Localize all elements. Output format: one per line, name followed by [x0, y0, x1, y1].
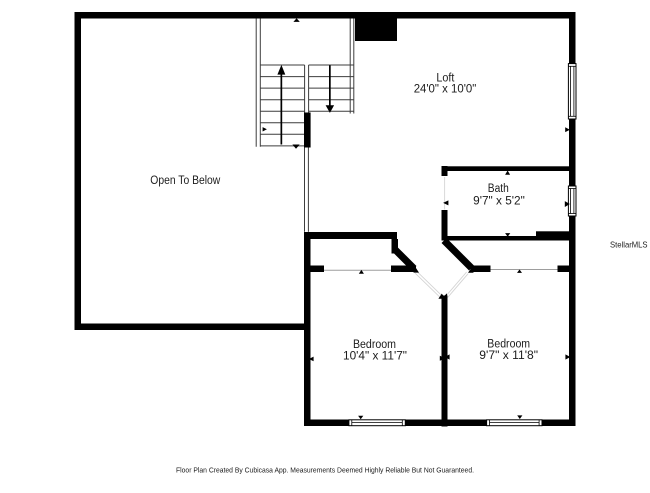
svg-text:Bath: Bath	[488, 183, 509, 195]
svg-text:24'0" x 10'0": 24'0" x 10'0"	[414, 82, 477, 95]
svg-text:Open To Below: Open To Below	[150, 175, 221, 187]
svg-text:10'4" x 11'7": 10'4" x 11'7"	[343, 350, 407, 363]
svg-text:9'7" x 11'8": 9'7" x 11'8"	[479, 349, 538, 362]
svg-text:9'7" x 5'2": 9'7" x 5'2"	[473, 195, 525, 208]
svg-text:StellarMLS: StellarMLS	[610, 241, 648, 250]
svg-text:Floor Plan Created By Cubicasa: Floor Plan Created By Cubicasa App. Meas…	[176, 465, 474, 474]
